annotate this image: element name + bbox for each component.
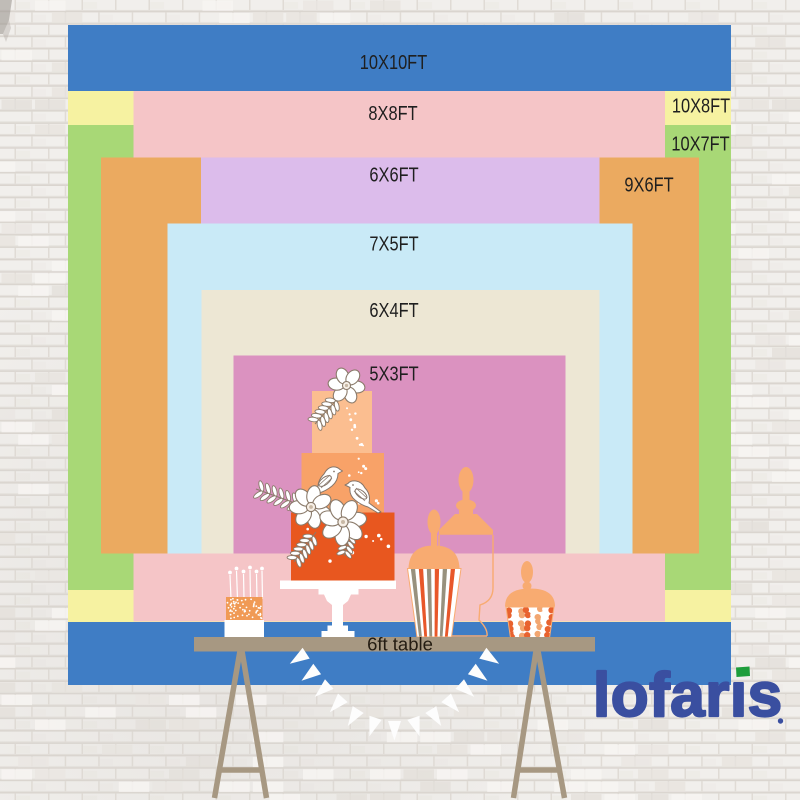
svg-text:lofarıs: lofarıs — [593, 661, 783, 730]
svg-text:8X8FT: 8X8FT — [368, 101, 417, 124]
svg-text:10X8FT: 10X8FT — [672, 94, 730, 117]
svg-text:10X10FT: 10X10FT — [360, 50, 427, 73]
svg-text:10X7FT: 10X7FT — [671, 132, 729, 155]
svg-text:6X4FT: 6X4FT — [369, 298, 418, 321]
svg-text:6ft table: 6ft table — [367, 634, 433, 655]
svg-text:6X6FT: 6X6FT — [369, 163, 418, 186]
svg-text:7X5FT: 7X5FT — [369, 232, 418, 255]
svg-text:9X6FT: 9X6FT — [624, 173, 673, 196]
svg-text:5X3FT: 5X3FT — [369, 362, 418, 385]
